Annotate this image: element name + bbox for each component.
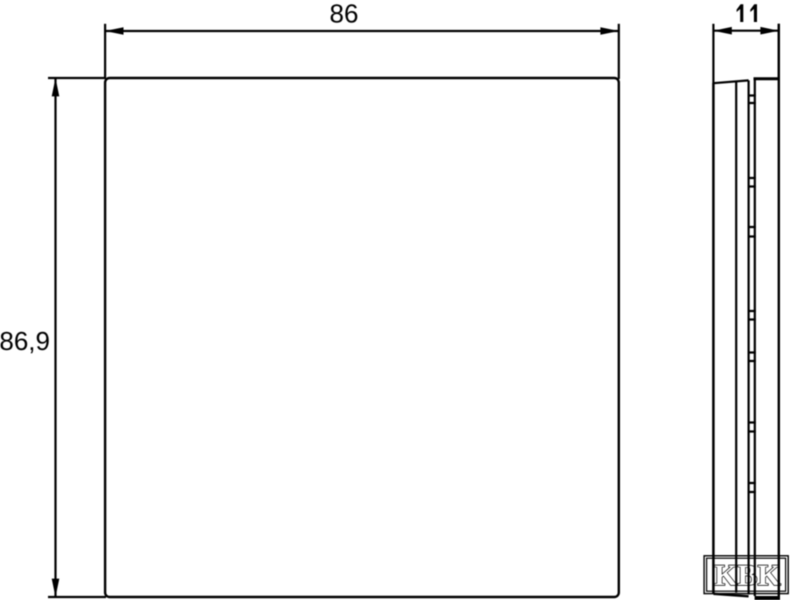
svg-text:86: 86 <box>330 0 359 28</box>
svg-text:86,9: 86,9 <box>0 326 50 356</box>
